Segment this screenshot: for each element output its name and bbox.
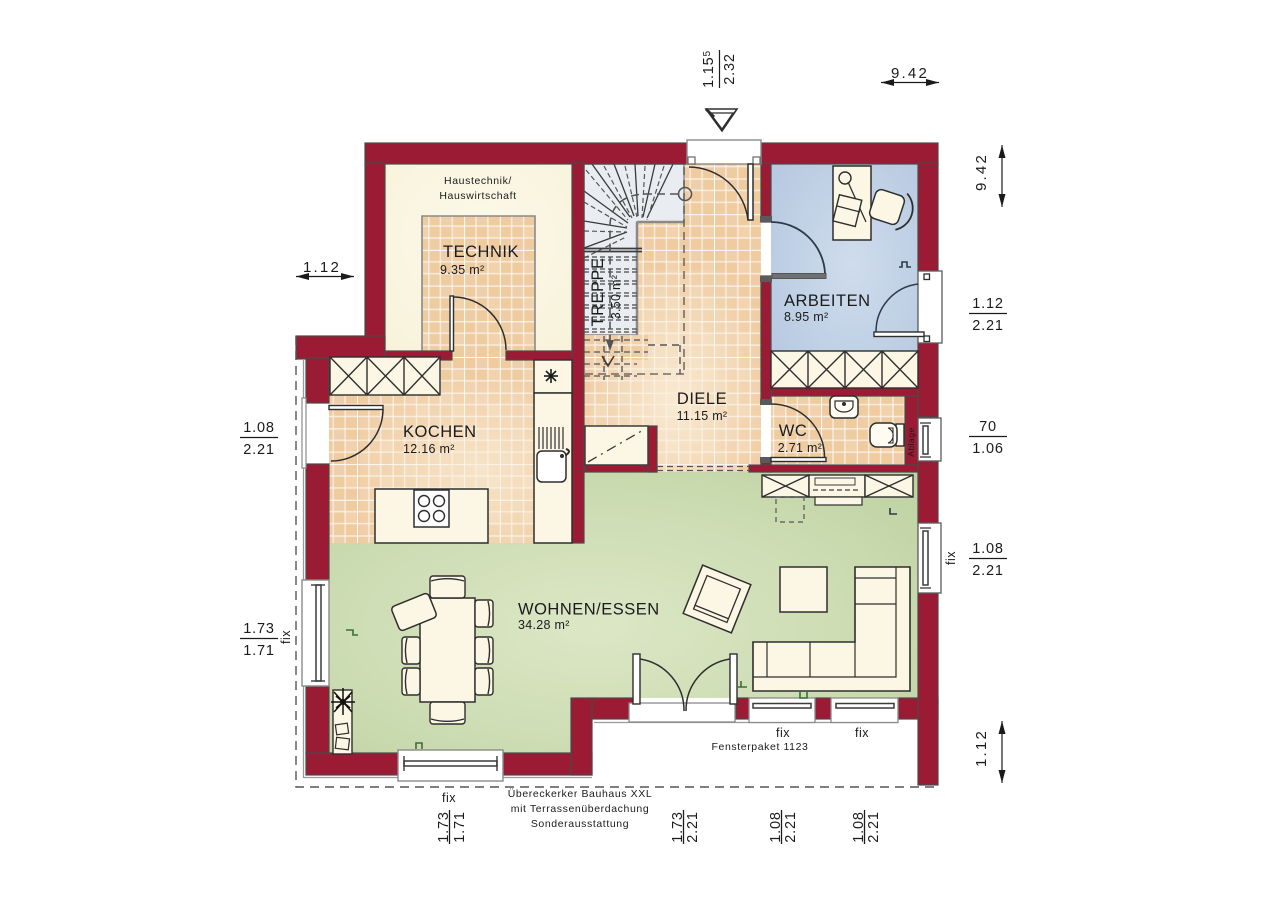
svg-text:WC: WC — [779, 422, 808, 440]
svg-text:1.06: 1.06 — [972, 441, 1003, 457]
svg-text:9.42: 9.42 — [973, 153, 990, 191]
svg-text:9.35 m²: 9.35 m² — [440, 263, 484, 277]
svg-text:1.08: 1.08 — [768, 811, 784, 842]
svg-text:11.15 m²: 11.15 m² — [677, 409, 728, 423]
svg-text:DIELE: DIELE — [677, 390, 727, 408]
svg-text:fix: fix — [776, 726, 790, 740]
svg-text:Haustechnik/: Haustechnik/ — [444, 175, 512, 187]
svg-text:1.71: 1.71 — [452, 811, 468, 842]
svg-text:Ablage: Ablage — [906, 427, 916, 456]
svg-text:Hauswirtschaft: Hauswirtschaft — [439, 190, 516, 202]
svg-text:fix: fix — [442, 791, 456, 805]
svg-text:WOHNEN/ESSEN: WOHNEN/ESSEN — [518, 601, 660, 619]
svg-text:1.12: 1.12 — [973, 729, 990, 767]
svg-text:Fensterpaket 1123: Fensterpaket 1123 — [712, 741, 809, 753]
svg-text:fix: fix — [855, 726, 869, 740]
svg-text:2.21: 2.21 — [972, 563, 1003, 579]
svg-text:1.08: 1.08 — [243, 420, 274, 436]
svg-text:TECHNIK: TECHNIK — [443, 243, 519, 261]
svg-text:8.95 m²: 8.95 m² — [784, 310, 828, 324]
svg-text:2.71 m²: 2.71 m² — [778, 441, 822, 455]
svg-text:70: 70 — [979, 419, 997, 435]
svg-text:2.21: 2.21 — [783, 811, 799, 842]
svg-text:1.73: 1.73 — [670, 811, 686, 842]
svg-text:9.42: 9.42 — [891, 65, 929, 82]
svg-text:Sonderausstattung: Sonderausstattung — [531, 818, 629, 830]
svg-text:mit Terrassenüberdachung: mit Terrassenüberdachung — [511, 803, 650, 815]
svg-text:2.21: 2.21 — [685, 811, 701, 842]
svg-text:2.21: 2.21 — [243, 442, 274, 458]
svg-text:1.08: 1.08 — [972, 541, 1003, 557]
svg-text:ARBEITEN: ARBEITEN — [784, 292, 871, 310]
svg-text:12.16 m²: 12.16 m² — [403, 442, 455, 456]
svg-text:1.73: 1.73 — [436, 811, 452, 842]
svg-text:KOCHEN: KOCHEN — [403, 423, 477, 441]
svg-text:2.21: 2.21 — [866, 811, 882, 842]
svg-text:3.50 m²: 3.50 m² — [609, 275, 623, 319]
svg-text:1.08: 1.08 — [851, 811, 867, 842]
svg-text:2.32: 2.32 — [722, 53, 738, 84]
svg-text:TREPPE: TREPPE — [589, 257, 607, 326]
svg-text:34.28 m²: 34.28 m² — [518, 618, 570, 632]
svg-text:fix: fix — [279, 630, 293, 644]
svg-text:1.71: 1.71 — [243, 643, 274, 659]
svg-text:fix: fix — [944, 551, 958, 565]
svg-text:Übereckerker Bauhaus XXL: Übereckerker Bauhaus XXL — [508, 788, 653, 800]
svg-text:2.21: 2.21 — [972, 318, 1003, 334]
svg-text:1.73: 1.73 — [243, 621, 274, 637]
svg-text:1.12: 1.12 — [972, 296, 1003, 312]
